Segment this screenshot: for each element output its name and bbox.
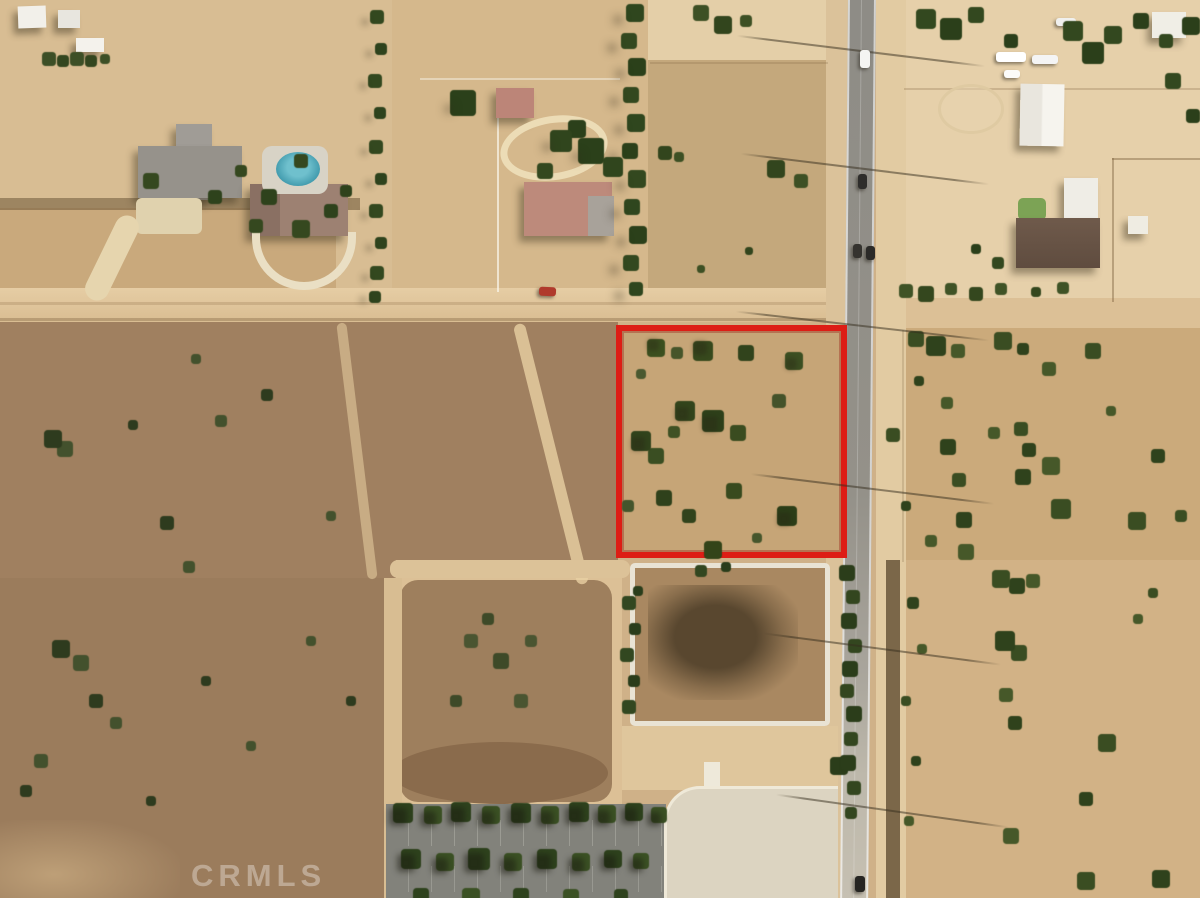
entrance-curb	[704, 762, 720, 788]
fence-white-top-middle-h	[420, 78, 620, 80]
house-brown-roof	[1016, 218, 1100, 268]
shed-2	[58, 10, 80, 28]
scrub-mound	[392, 742, 608, 804]
fence-white-top-middle	[497, 88, 499, 292]
garage-white	[1064, 178, 1098, 218]
fence-top-center	[650, 62, 828, 64]
fenced-lot-dark-brush	[648, 585, 798, 700]
driveway-pad-1	[136, 198, 202, 234]
shed-3	[76, 38, 104, 52]
sand-below-fenced-lot	[622, 726, 838, 790]
car-dark-1	[858, 174, 867, 189]
outlined-vacant-lot	[616, 325, 847, 558]
trailer-1	[996, 52, 1026, 62]
house-3-pink	[496, 88, 534, 118]
house-4-gray-wing	[588, 196, 614, 236]
aerial-photo: CRMLS	[0, 0, 1200, 898]
swimming-pool	[276, 152, 320, 186]
trailer-2	[1032, 55, 1058, 64]
house-gray-roof	[138, 146, 242, 198]
building-top-right-corner	[1152, 12, 1186, 38]
car-dark-south	[855, 876, 865, 892]
sand-strip-top-center	[648, 0, 830, 60]
car-dark-3	[866, 246, 875, 260]
parking-lot-trees	[0, 0, 2, 2]
path-horizontal-mid	[390, 560, 630, 578]
field-right-middle	[876, 328, 1200, 564]
crmls-watermark: CRMLS	[191, 858, 326, 894]
dirt-road-edge	[0, 318, 848, 321]
dirt-road-track	[0, 302, 848, 305]
barn-white	[1019, 84, 1064, 147]
shed-1	[18, 6, 47, 29]
parking-stalls-row1	[386, 820, 666, 846]
lawn-patch	[1018, 198, 1046, 220]
parking-stalls-row2	[386, 866, 666, 892]
fence-top-right-horizontal-2	[1112, 158, 1200, 160]
car-dark-2	[853, 244, 862, 258]
red-car	[539, 287, 556, 297]
truck-white	[1004, 70, 1020, 78]
car-white-north	[860, 50, 870, 68]
fence-top-right-vertical	[1112, 158, 1114, 302]
dirt-road-right-continuation	[876, 298, 1200, 328]
field-right-bottom	[876, 560, 1200, 898]
fence-right-field	[902, 330, 904, 562]
concrete-apron	[664, 786, 838, 898]
pen-shed	[1128, 216, 1148, 234]
trailer-3	[1056, 18, 1076, 26]
brush-strip-road-east	[886, 560, 900, 898]
dirt-road-horizontal	[0, 288, 848, 322]
scrub-lighter-corner	[0, 820, 180, 898]
round-pen	[938, 84, 1004, 134]
